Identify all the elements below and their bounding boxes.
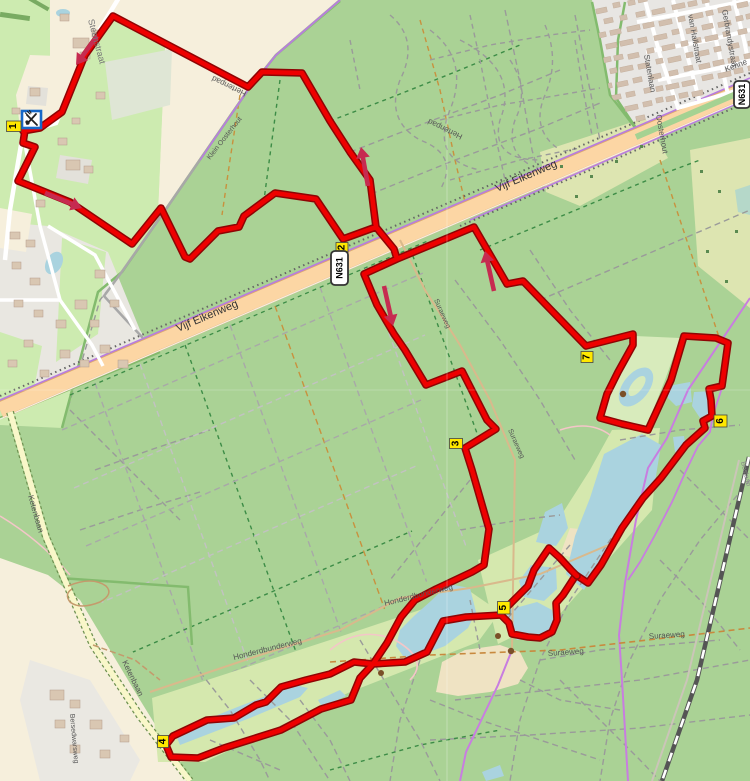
svg-text:5: 5 <box>498 604 509 610</box>
svg-text:2: 2 <box>337 244 348 250</box>
svg-text:6: 6 <box>715 418 726 424</box>
svg-text:3: 3 <box>451 440 462 446</box>
svg-text:1: 1 <box>8 123 19 129</box>
svg-text:4: 4 <box>158 738 169 744</box>
svg-text:N631: N631 <box>737 84 747 106</box>
svg-text:7: 7 <box>582 354 593 360</box>
svg-text:N631: N631 <box>335 257 345 279</box>
